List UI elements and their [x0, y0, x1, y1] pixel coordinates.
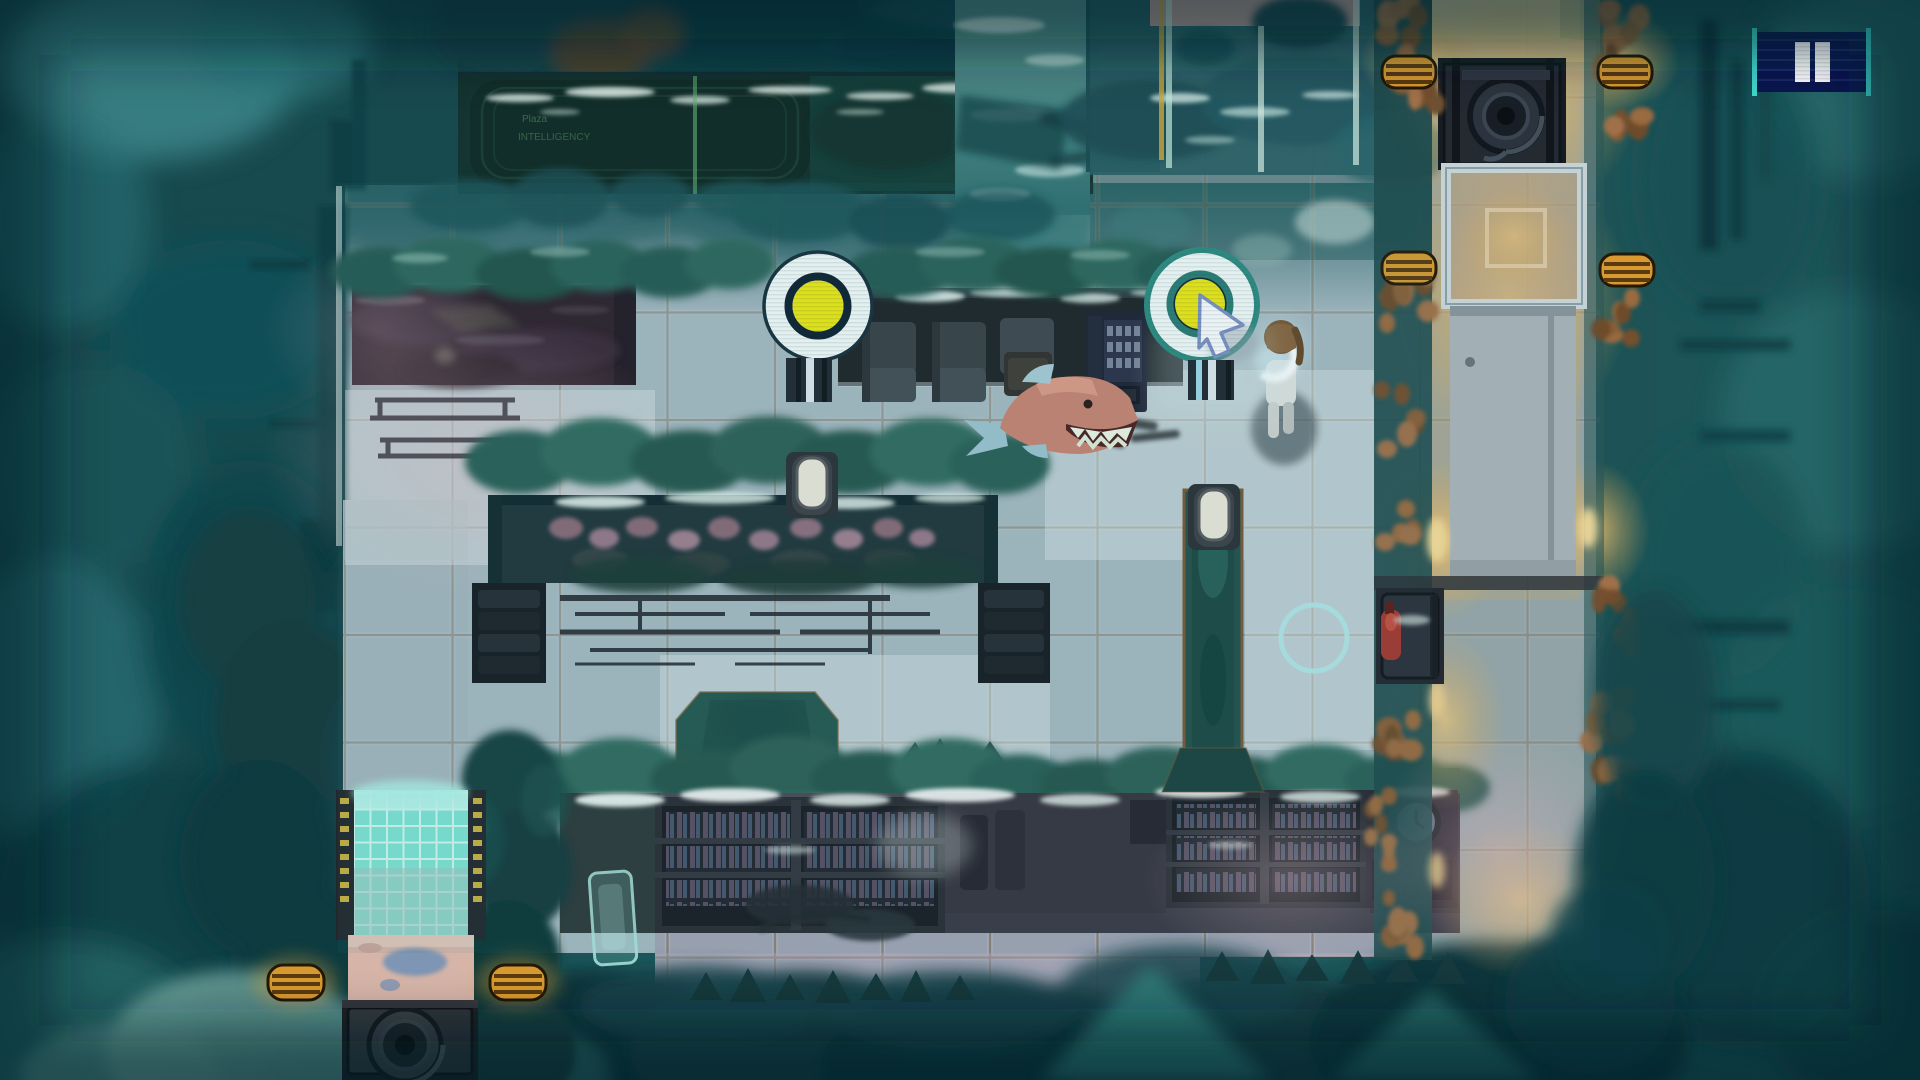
svg-text:Plaza: Plaza — [522, 114, 547, 125]
svg-text:INTELLIGENCY: INTELLIGENCY — [518, 132, 591, 143]
